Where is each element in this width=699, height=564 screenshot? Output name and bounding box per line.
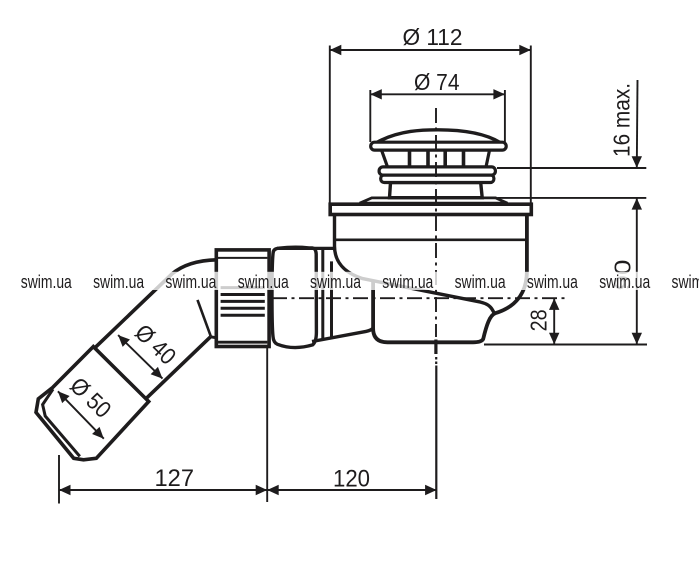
svg-text:Ø 112: Ø 112 [403,24,463,50]
svg-text:swim.ua: swim.ua [165,271,217,292]
svg-text:127: 127 [155,465,195,492]
svg-text:swim.ua: swim.ua [382,271,434,292]
svg-text:swim.ua: swim.ua [599,271,651,292]
svg-text:swim.ua: swim.ua [455,271,507,292]
svg-text:swim.ua: swim.ua [310,271,362,292]
svg-text:swim.ua: swim.ua [238,271,290,292]
svg-text:Ø 74: Ø 74 [414,69,460,95]
svg-text:28: 28 [526,309,552,331]
svg-text:swim.ua: swim.ua [93,271,145,292]
svg-text:swim.ua: swim.ua [21,271,73,292]
svg-text:swim.ua: swim.ua [527,271,579,292]
svg-text:120: 120 [333,466,370,493]
svg-text:16 max.: 16 max. [609,83,635,157]
svg-text:swim.ua: swim.ua [672,271,699,292]
